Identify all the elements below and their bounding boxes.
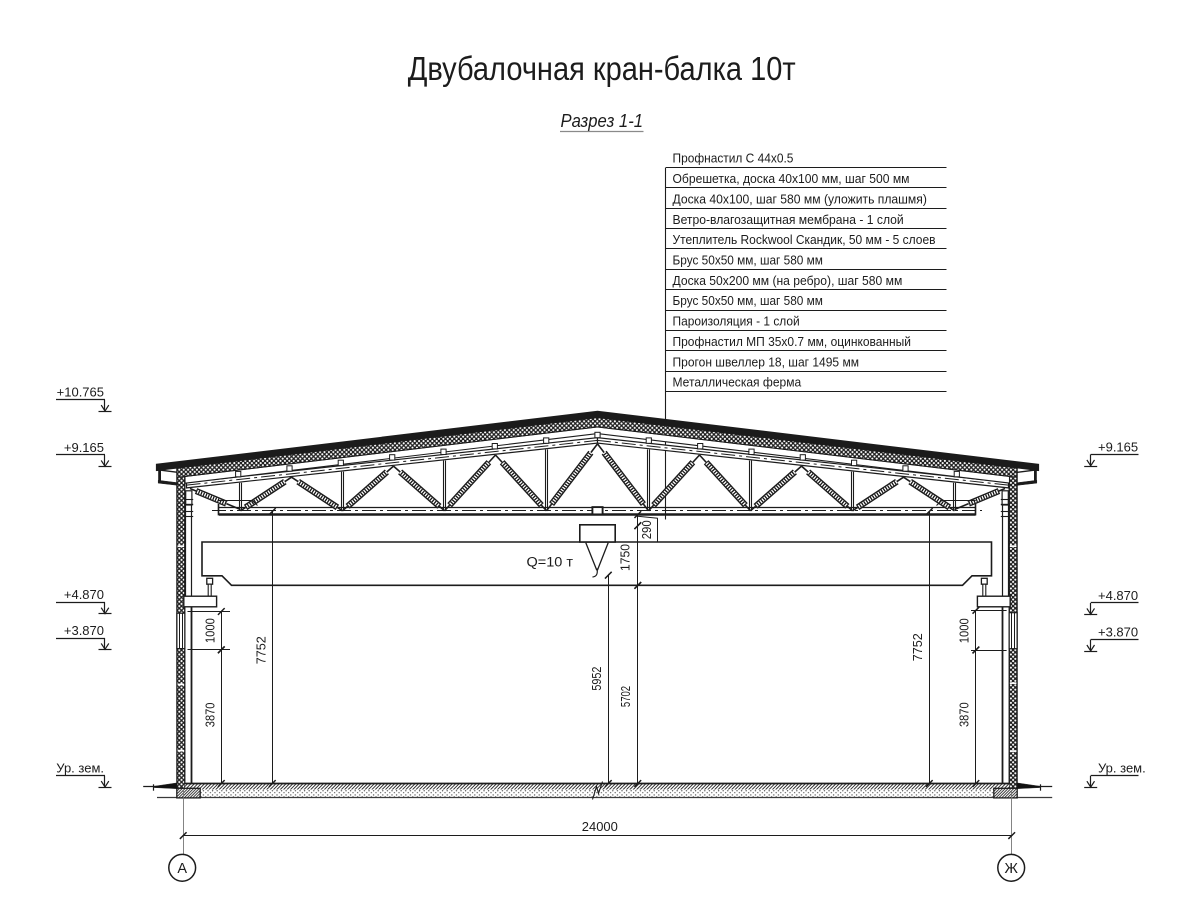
svg-text:Прогон швеллер 18, шаг 1495 мм: Прогон швеллер 18, шаг 1495 мм (673, 354, 860, 369)
svg-text:5952: 5952 (590, 667, 604, 691)
svg-text:Утеплитель Rockwool Скандик, 5: Утеплитель Rockwool Скандик, 50 мм - 5 с… (673, 232, 936, 247)
svg-text:+4.870: +4.870 (64, 587, 104, 602)
svg-text:1000: 1000 (203, 618, 217, 643)
svg-text:Пароизоляция - 1 слой: Пароизоляция - 1 слой (673, 314, 800, 329)
svg-text:1750: 1750 (619, 544, 633, 571)
svg-text:Ур. зем.: Ур. зем. (1098, 761, 1146, 776)
svg-text:Ур. зем.: Ур. зем. (56, 761, 104, 776)
svg-text:Двубалочная кран-балка 10т: Двубалочная кран-балка 10т (408, 51, 796, 88)
svg-text:1000: 1000 (958, 618, 972, 643)
svg-text:3870: 3870 (958, 702, 972, 727)
svg-text:+9.165: +9.165 (1098, 439, 1138, 454)
svg-text:Обрешетка, доска 40х100 мм, ша: Обрешетка, доска 40х100 мм, шаг 500 мм (673, 171, 910, 186)
svg-text:+9.165: +9.165 (64, 440, 104, 455)
svg-text:А: А (177, 861, 187, 877)
svg-text:+3.870: +3.870 (64, 623, 104, 638)
svg-text:+4.870: +4.870 (1098, 588, 1138, 603)
svg-text:Разрез 1-1: Разрез 1-1 (561, 110, 644, 131)
svg-text:Ж: Ж (1005, 861, 1019, 877)
svg-text:24000: 24000 (582, 819, 618, 834)
svg-text:290: 290 (640, 520, 654, 539)
svg-text:Брус 50х50 мм, шаг 580 мм: Брус 50х50 мм, шаг 580 мм (673, 253, 823, 268)
svg-text:7752: 7752 (254, 636, 268, 664)
svg-text:+3.870: +3.870 (1098, 624, 1138, 639)
svg-text:5702: 5702 (619, 686, 633, 707)
svg-text:Металлическая ферма: Металлическая ферма (673, 375, 802, 390)
svg-text:Профнастил С 44х0.5: Профнастил С 44х0.5 (673, 151, 794, 166)
svg-text:Доска 40х100, шаг 580 мм (улож: Доска 40х100, шаг 580 мм (уложить плашмя… (673, 191, 927, 206)
svg-text:Ветро-влагозащитная мембрана -: Ветро-влагозащитная мембрана - 1 слой (673, 212, 904, 227)
svg-text:Брус 50х50 мм, шаг 580 мм: Брус 50х50 мм, шаг 580 мм (673, 293, 823, 308)
svg-text:+10.765: +10.765 (57, 385, 104, 400)
svg-text:Q=10 т: Q=10 т (527, 555, 574, 570)
svg-text:3870: 3870 (203, 703, 217, 728)
svg-text:Доска 50х200 мм (на ребро), ша: Доска 50х200 мм (на ребро), шаг 580 мм (673, 273, 903, 288)
svg-text:7752: 7752 (911, 633, 925, 661)
svg-text:Профнастил МП 35х0.7 мм, оцинк: Профнастил МП 35х0.7 мм, оцинкованный (673, 334, 912, 349)
